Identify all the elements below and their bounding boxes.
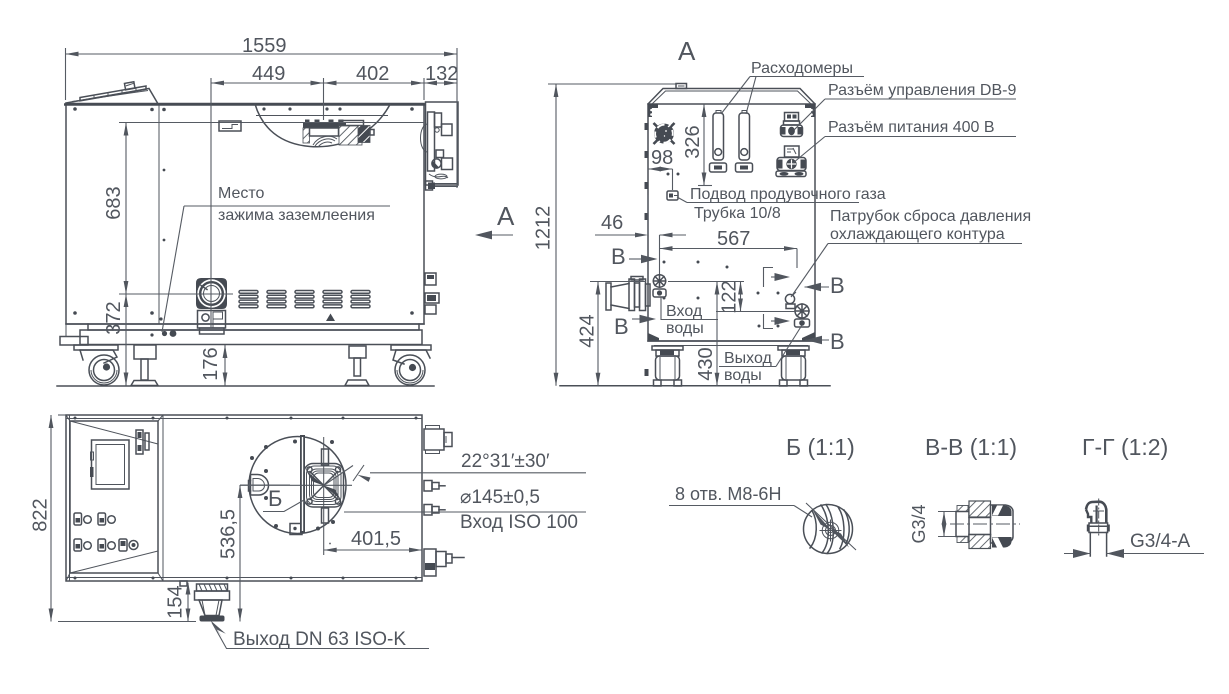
svg-text:охлаждающего контура: охлаждающего контура [830, 226, 1005, 243]
svg-text:46: 46 [601, 212, 623, 234]
svg-text:Вход ISO 100: Вход ISO 100 [460, 512, 578, 533]
svg-text:Б: Б [268, 486, 282, 511]
svg-text:Место: Место [218, 185, 265, 202]
svg-text:132: 132 [425, 63, 458, 85]
svg-text:А: А [497, 201, 515, 231]
svg-text:822: 822 [30, 498, 52, 531]
svg-text:В: В [611, 244, 626, 269]
svg-text:G3/4-A: G3/4-A [1130, 531, 1191, 552]
svg-text:Разъём управления DB-9: Разъём управления DB-9 [828, 82, 1016, 99]
svg-text:G3/4: G3/4 [909, 504, 929, 543]
svg-text:1212: 1212 [533, 206, 555, 251]
svg-text:воды: воды [666, 320, 704, 337]
svg-text:Подвод продувочного газа: Подвод продувочного газа [690, 186, 886, 203]
svg-text:Выход DN 63 ISO-K: Выход DN 63 ISO-K [233, 629, 406, 650]
svg-text:8 отв. М8-6Н: 8 отв. М8-6Н [675, 484, 781, 504]
svg-text:А: А [678, 36, 696, 66]
svg-text:⌀145±0,5: ⌀145±0,5 [460, 487, 540, 508]
svg-text:402: 402 [356, 63, 389, 85]
svg-text:122: 122 [719, 280, 741, 313]
svg-text:Патрубок сброса давления: Патрубок сброса давления [830, 208, 1031, 225]
svg-text:зажима заземлеения: зажима заземлеения [218, 207, 375, 224]
svg-text:Трубка 10/8: Трубка 10/8 [694, 205, 781, 222]
svg-text:В: В [614, 314, 629, 339]
svg-text:449: 449 [252, 63, 285, 85]
svg-text:В: В [830, 329, 845, 354]
svg-text:176: 176 [200, 347, 222, 380]
svg-text:Вход: Вход [666, 303, 703, 320]
svg-text:22°31′±30′: 22°31′±30′ [461, 451, 550, 472]
svg-text:Расходомеры: Расходомеры [751, 60, 853, 77]
svg-text:567: 567 [717, 228, 750, 250]
svg-text:401,5: 401,5 [351, 528, 401, 550]
svg-text:В: В [830, 273, 845, 298]
svg-text:воды: воды [724, 367, 762, 384]
svg-text:430: 430 [695, 347, 717, 380]
svg-text:424: 424 [577, 314, 599, 347]
svg-text:Б (1:1): Б (1:1) [786, 434, 855, 460]
svg-text:683: 683 [103, 186, 125, 219]
svg-text:326: 326 [682, 125, 704, 158]
svg-text:372: 372 [103, 301, 125, 334]
svg-text:В-В (1:1): В-В (1:1) [925, 434, 1017, 460]
svg-text:Разъём питания 400 В: Разъём питания 400 В [828, 119, 995, 136]
svg-text:536,5: 536,5 [218, 509, 240, 559]
svg-text:98: 98 [651, 147, 673, 169]
svg-text:1559: 1559 [242, 35, 287, 57]
svg-text:Г-Г (1:2): Г-Г (1:2) [1082, 434, 1168, 460]
svg-text:154: 154 [165, 585, 187, 618]
svg-text:Выход: Выход [724, 350, 773, 367]
